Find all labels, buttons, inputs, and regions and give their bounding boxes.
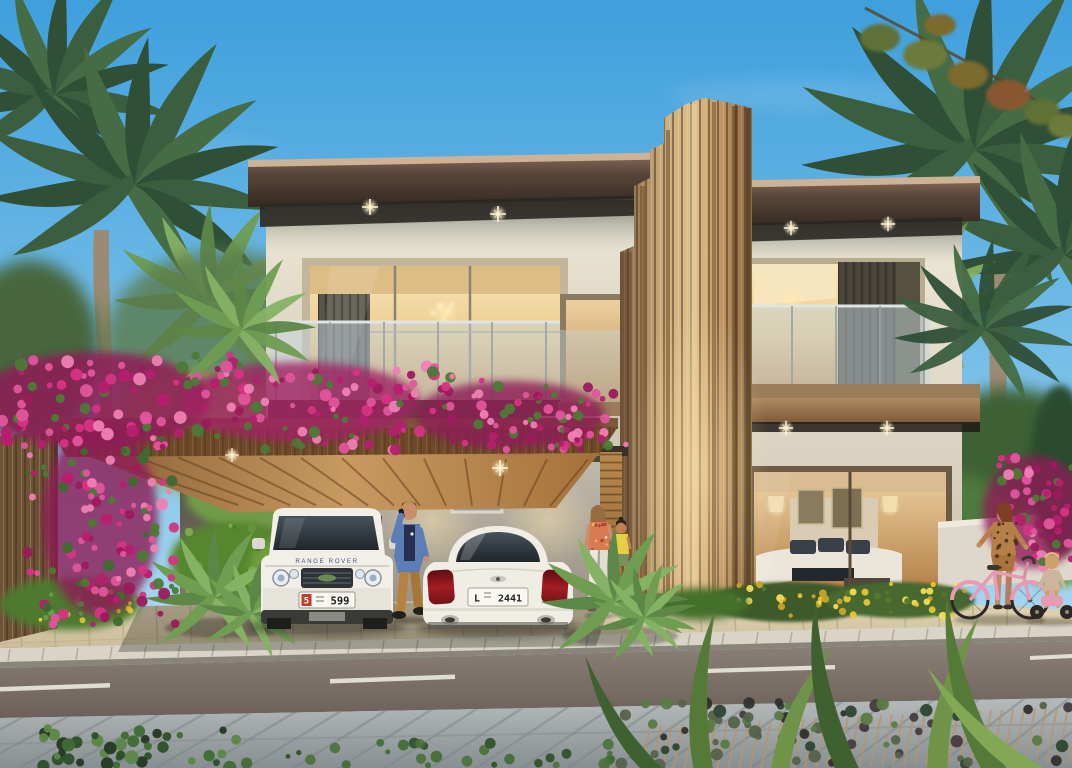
suv-hood-brand-text: RANGE ROVER: [295, 558, 358, 565]
coupe-license-plate: L 2441: [468, 588, 528, 606]
suv-mirror: [252, 538, 265, 549]
wall-art: [798, 490, 824, 524]
man-shoe: [392, 611, 406, 619]
mid-band-canopy: [736, 384, 980, 432]
plate-number: 599: [331, 596, 350, 608]
right-balcony: [740, 306, 930, 386]
table-lamp: [882, 496, 898, 512]
bike-seat: [987, 565, 1000, 570]
coupe-taillight: [427, 569, 455, 605]
suv-license-plate: 5 599: [299, 592, 355, 608]
coupe-badge: [490, 576, 506, 583]
suv-badge: [318, 574, 336, 581]
pillows: [790, 538, 870, 554]
toddler-head: [1045, 555, 1059, 569]
suv-grille: [301, 568, 353, 588]
plate-region: L: [474, 594, 480, 605]
villa-render-stage: RANGE ROVER 5 599: [0, 0, 1072, 768]
left-roof: [248, 152, 690, 227]
plate-number: 2441: [498, 594, 522, 605]
scene-villa-render: RANGE ROVER 5 599: [0, 0, 1072, 768]
plate-region: 5: [304, 597, 309, 607]
man-shirt: [404, 525, 415, 561]
wall-art: [832, 488, 862, 528]
